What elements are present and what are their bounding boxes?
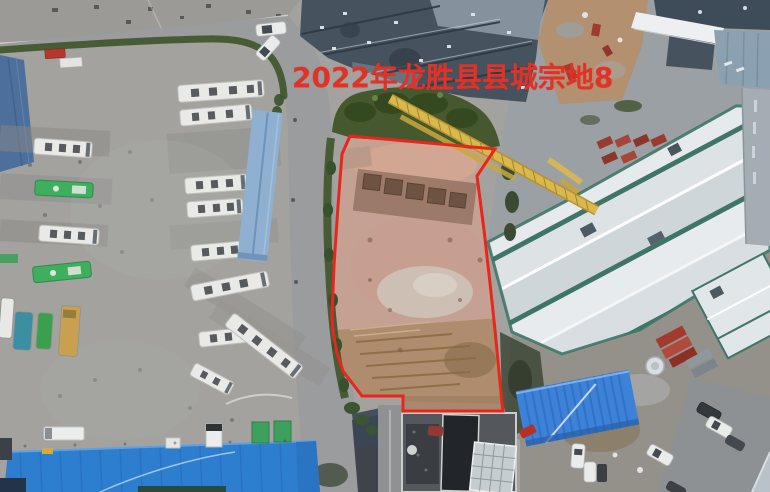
- yellow-object: [42, 448, 53, 454]
- truck-white: [44, 427, 84, 440]
- car: [597, 464, 607, 482]
- shed-small: [166, 438, 180, 448]
- side-road: [742, 88, 770, 246]
- building-under-construction-roofs: [402, 413, 516, 492]
- aerial-photo-viewport: 2022年龙胜县县城宗地8: [0, 0, 770, 492]
- bus: [34, 138, 93, 158]
- storage-tank: [646, 357, 664, 375]
- annotation-label: 2022年龙胜县县城宗地8: [292, 56, 613, 96]
- green-bin: [274, 421, 291, 442]
- bus-green: [35, 180, 94, 198]
- green-bin: [252, 422, 269, 443]
- truck-red: [45, 48, 66, 58]
- grid-panel: [470, 442, 517, 492]
- kiosk: [206, 424, 222, 447]
- car: [255, 21, 286, 36]
- bus: [187, 198, 244, 218]
- car: [584, 462, 596, 482]
- bus-green-partial: [0, 254, 18, 263]
- van-white: [60, 57, 83, 68]
- car: [571, 444, 586, 469]
